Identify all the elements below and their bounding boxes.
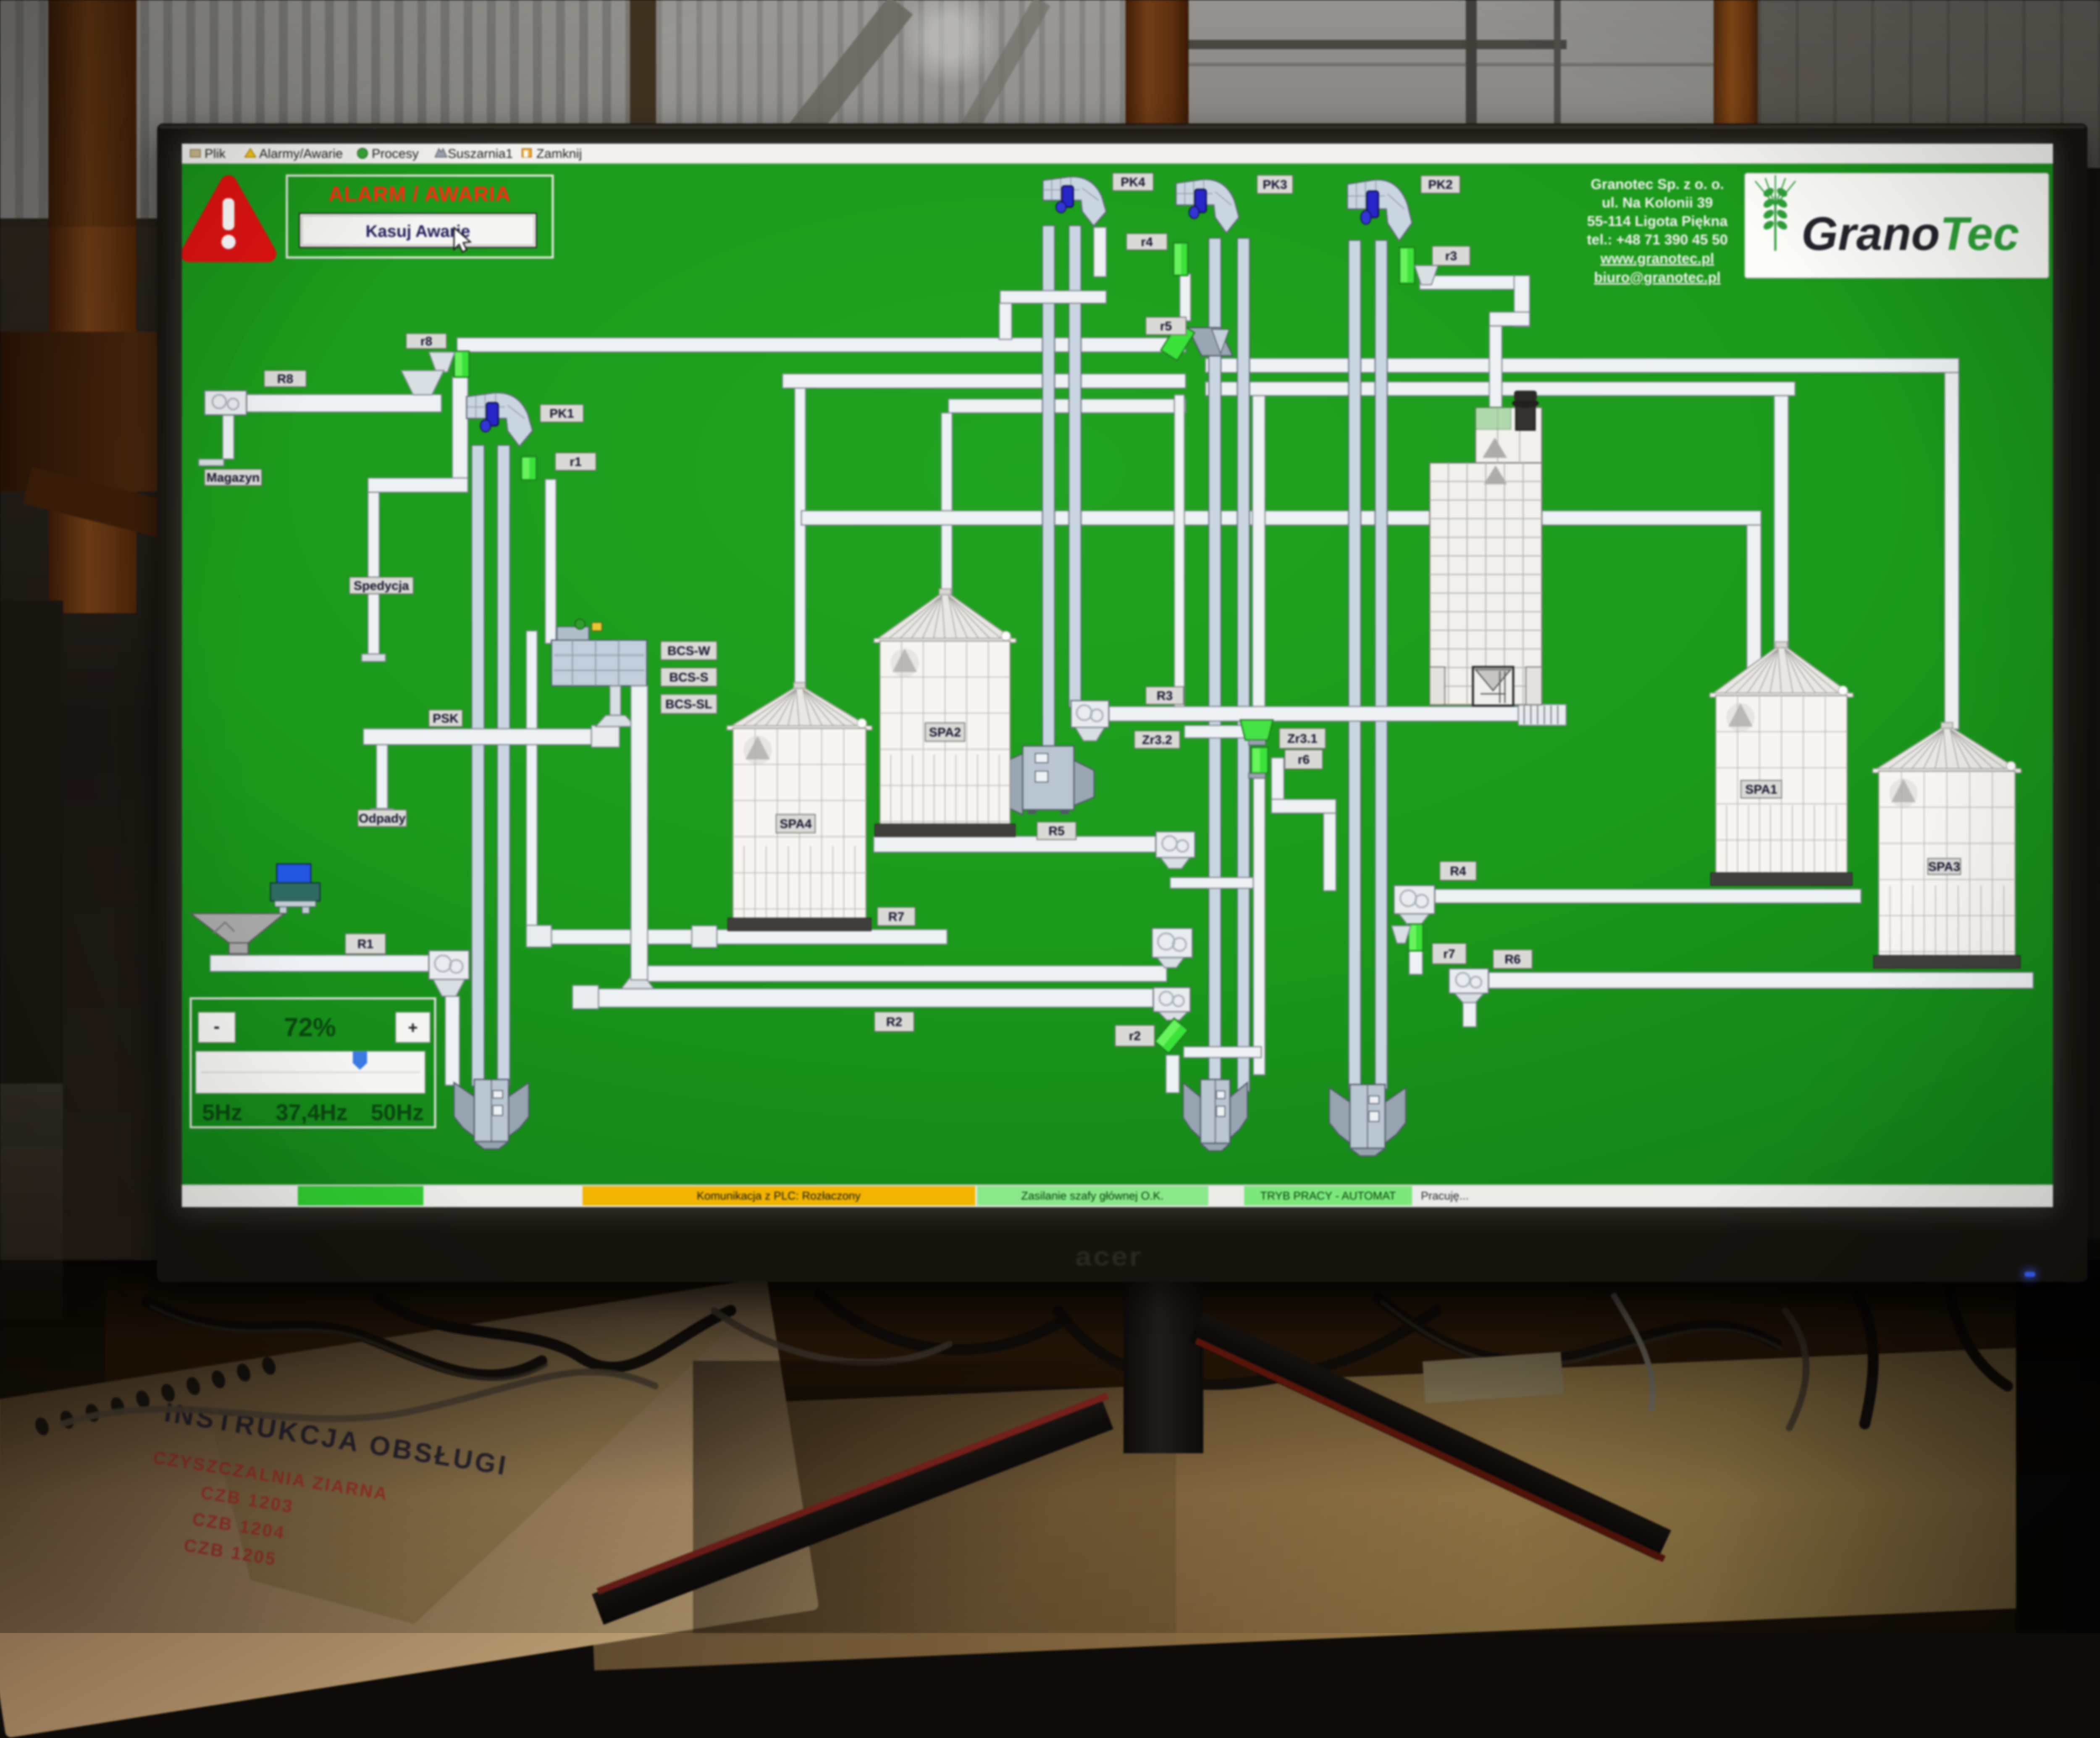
- svg-text:TRYB PRACY - AUTOMAT: TRYB PRACY - AUTOMAT: [1260, 1189, 1396, 1202]
- svg-text:R1: R1: [357, 937, 373, 951]
- svg-text:R8: R8: [277, 372, 293, 386]
- svg-text:-: -: [214, 1016, 220, 1037]
- svg-text:55-114 Ligota Piękna: 55-114 Ligota Piękna: [1587, 213, 1728, 229]
- svg-text:Alarmy/Awarie: Alarmy/Awarie: [259, 146, 343, 161]
- svg-text:72%: 72%: [284, 1013, 336, 1042]
- svg-text:r8: r8: [420, 335, 432, 349]
- svg-text:R5: R5: [1048, 824, 1064, 838]
- svg-text:PK4: PK4: [1121, 176, 1145, 189]
- svg-text:GranoTec: GranoTec: [1801, 207, 2019, 260]
- svg-text:Procesy: Procesy: [372, 146, 419, 161]
- svg-text:PK1: PK1: [549, 407, 574, 421]
- svg-text:R4: R4: [1450, 864, 1466, 878]
- svg-text:Suszarnia1: Suszarnia1: [448, 146, 513, 161]
- svg-text:R3: R3: [1157, 689, 1173, 703]
- svg-text:Plik: Plik: [205, 146, 226, 161]
- svg-text:Spedycja: Spedycja: [354, 579, 409, 593]
- svg-text:r1: r1: [570, 455, 581, 469]
- svg-text:BCS-W: BCS-W: [667, 644, 710, 658]
- svg-text:r6: r6: [1298, 753, 1310, 767]
- svg-text:r5: r5: [1160, 320, 1172, 333]
- svg-text:PK3: PK3: [1263, 178, 1287, 192]
- svg-text:ul. Na Kolonii 39: ul. Na Kolonii 39: [1602, 195, 1713, 211]
- svg-text:SPA4: SPA4: [780, 817, 811, 831]
- svg-text:Zr3.2: Zr3.2: [1142, 733, 1172, 747]
- svg-text:tel.: +48 71 390 45 50: tel.: +48 71 390 45 50: [1587, 232, 1728, 248]
- svg-text:R7: R7: [888, 910, 904, 924]
- svg-text:Komunikacja z PLC: Rozłaczony: Komunikacja z PLC: Rozłaczony: [697, 1189, 861, 1202]
- svg-text:r7: r7: [1443, 947, 1455, 961]
- svg-text:Zamknij: Zamknij: [536, 146, 582, 161]
- svg-text:50Hz: 50Hz: [371, 1100, 424, 1125]
- svg-text:ALARM / AWARIA: ALARM / AWARIA: [328, 182, 511, 206]
- svg-text:BCS-SL: BCS-SL: [665, 698, 712, 711]
- svg-text:+: +: [408, 1019, 417, 1037]
- svg-text:Zasilanie szafy głównej O.K.: Zasilanie szafy głównej O.K.: [1021, 1189, 1163, 1202]
- svg-text:R6: R6: [1504, 953, 1520, 966]
- svg-text:BCS-S: BCS-S: [669, 671, 708, 685]
- svg-text:Magazyn: Magazyn: [207, 471, 260, 485]
- svg-text:Zr3.1: Zr3.1: [1287, 732, 1318, 746]
- svg-text:www.granotec.pl: www.granotec.pl: [1600, 251, 1714, 267]
- svg-text:r2: r2: [1129, 1029, 1141, 1043]
- svg-text:biuro@granotec.pl: biuro@granotec.pl: [1594, 270, 1720, 286]
- svg-text:5Hz: 5Hz: [202, 1100, 242, 1125]
- svg-text:Pracuję...: Pracuję...: [1421, 1189, 1469, 1202]
- svg-text:PK2: PK2: [1428, 178, 1452, 192]
- svg-text:Granotec Sp. z o. o.: Granotec Sp. z o. o.: [1591, 176, 1724, 192]
- svg-text:CZB 1205: CZB 1205: [183, 1535, 278, 1569]
- svg-text:SPA1: SPA1: [1745, 783, 1777, 797]
- svg-text:37,4Hz: 37,4Hz: [276, 1100, 347, 1125]
- svg-text:r4: r4: [1141, 235, 1153, 249]
- svg-text:SPA3: SPA3: [1928, 860, 1960, 874]
- svg-text:SPA2: SPA2: [929, 726, 961, 740]
- svg-text:Odpady: Odpady: [359, 812, 406, 826]
- svg-text:R2: R2: [886, 1015, 902, 1029]
- svg-text:PSK: PSK: [433, 712, 459, 726]
- svg-text:r3: r3: [1445, 249, 1457, 263]
